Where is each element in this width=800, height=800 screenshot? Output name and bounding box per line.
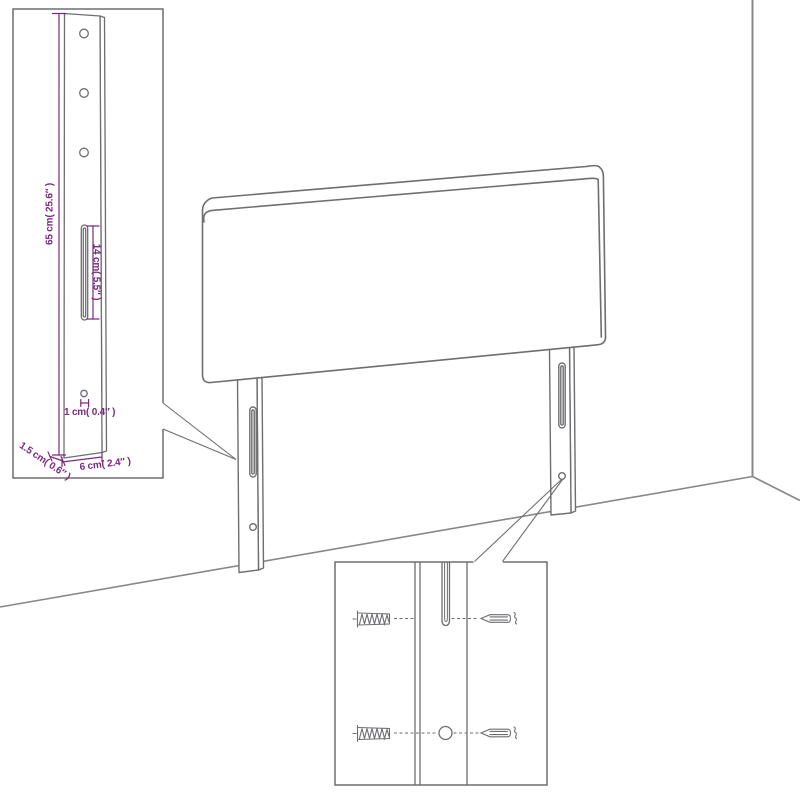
mounting-detail-inset	[335, 562, 547, 785]
right-callout-leader-right	[503, 480, 563, 562]
right-leg-slot-inner	[561, 366, 563, 425]
right-leg	[550, 346, 576, 515]
leg-strut-drawing	[64, 14, 107, 459]
right-leg-hole	[559, 473, 566, 480]
left-callout-leader-bottom	[163, 429, 236, 460]
strut-hole-middle	[80, 89, 89, 98]
hole-dimension-label: 1 cm( 0.4″ )	[64, 407, 115, 418]
left-leg	[238, 376, 264, 573]
callout-leader-lines	[163, 403, 563, 562]
strut-slot-inner	[83, 228, 85, 317]
strut-small-hole	[81, 390, 87, 396]
strut-hole-top	[80, 29, 89, 38]
slot-dimension-label: 14 cm( 5.5″ )	[91, 244, 102, 301]
strut-hole-bottom	[80, 148, 89, 157]
leg-detail-inset: 65 cm( 25.6″ ) 14 cm( 5.5″ ) 1 cm( 0.4″ …	[13, 9, 163, 483]
headboard-panel	[203, 166, 606, 383]
left-callout-leader-top	[163, 403, 236, 460]
mounting-inset-border	[335, 562, 547, 785]
left-leg-hole	[250, 524, 257, 531]
headboard-dimension-diagram: 65 cm( 25.6″ ) 14 cm( 5.5″ ) 1 cm( 0.4″ …	[0, 0, 800, 800]
panel-outline	[203, 166, 606, 383]
right-callout-leader-left	[475, 480, 562, 562]
mounting-hole	[439, 727, 452, 740]
height-dimension-label: 65 cm( 25.6″ )	[45, 183, 56, 245]
left-leg-slot-inner	[252, 410, 254, 474]
headboard-legs	[238, 346, 576, 573]
floor-line-right	[753, 477, 800, 501]
diagram-canvas: 65 cm( 25.6″ ) 14 cm( 5.5″ ) 1 cm( 0.4″ …	[0, 0, 800, 800]
